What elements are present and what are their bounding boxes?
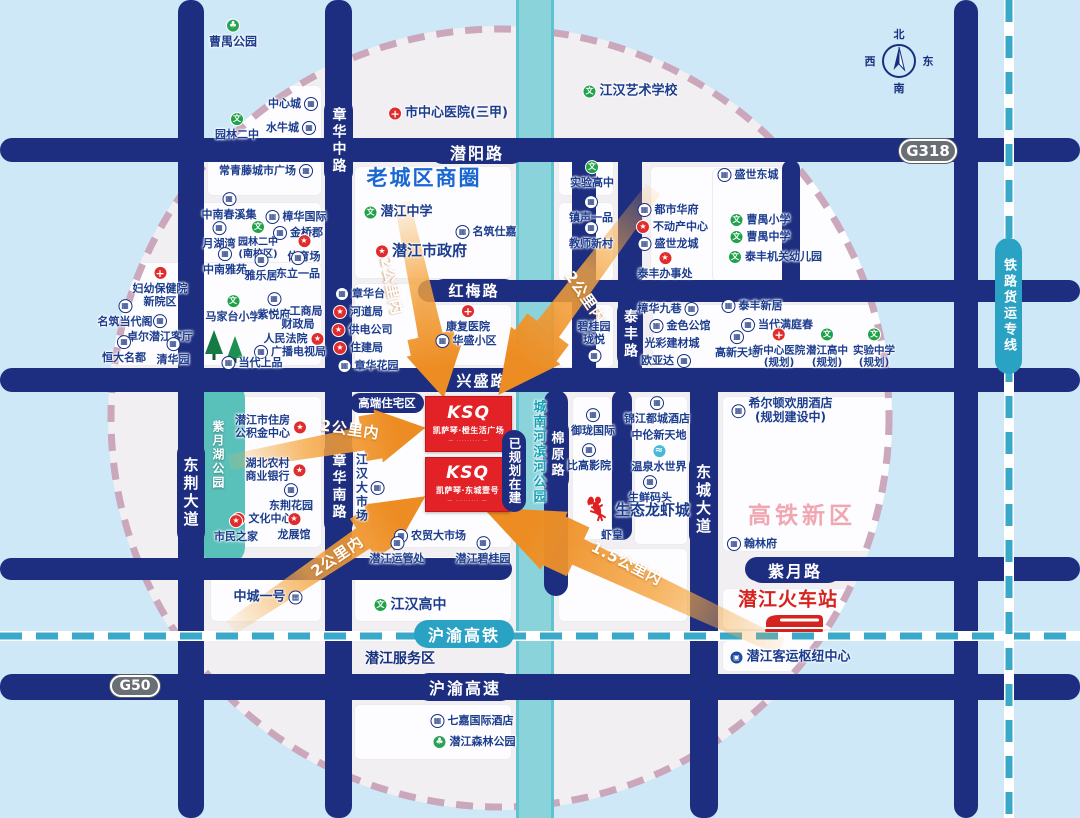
poi-text: 实验高中 [570,177,614,190]
poi-label: 紫月湖公园 [210,420,224,490]
poi-bld-site: ▦东荆花园 [269,483,313,513]
poi-school-site: 文江汉艺术学校 [582,85,677,100]
cart-icon: ▦ [677,354,691,368]
poi-text: 御珑国际 [571,425,615,438]
poi-bld-site: ▦章华台 [335,287,385,301]
bus-icon: ▣ [729,651,743,665]
poi-bld-site: ▦御珑国际 [571,408,615,438]
poi-star-site: ★人民法院 [264,332,325,346]
poi-text: 曹禺公园 [209,36,257,50]
poi-text: 河道局 [350,306,383,319]
lobster-icon [584,495,612,527]
school-icon: 文 [226,294,240,308]
project-tagline: — ········· — [447,498,487,504]
poi-text: 龙展馆 [278,529,311,542]
school-icon: 文 [363,206,377,220]
bld-icon: ▦ [338,359,352,373]
star-icon: ★ [375,244,389,258]
poi-text: 名筑仕嘉 [473,226,517,239]
poi-text: 生态龙虾城 [615,502,690,519]
city-block [354,704,512,760]
poi-bld-site: ▦盛世龙城 [638,237,699,251]
poi-text: 教师新村 [569,238,613,251]
bld-icon: ▦ [584,195,598,209]
poi-text: 盛世东城 [735,169,779,182]
poi-label: 虾皇 [601,530,623,543]
rail-label-freight: 铁路货运专线 [995,238,1022,374]
road-label-ziyue: 紫月路 [749,557,841,583]
poi-star-site: ★泰丰办事处 [638,251,693,281]
school-icon: 文 [730,230,744,244]
poi-bld-site: ▦雅乐居 [245,253,278,283]
poi-park-site: ♣曹禺公园 [209,19,257,50]
cross-icon: + [461,304,475,318]
star-icon: ★ [332,323,346,337]
poi-text: 紫月湖公园 [210,420,224,490]
poi-text: 碧桂园珑悦 [578,321,611,346]
poi-bld-site: ▦中心城 [268,97,318,111]
bld-icon: ▦ [222,192,236,206]
road-label-dongjing: 东荆大道 [177,440,205,546]
poi-bld-site: ▦中城一号 [233,591,302,606]
poi-star-site: ★住建局 [333,341,383,355]
bld-icon: ▦ [584,221,598,235]
poi-text: 市民之家 [214,531,258,544]
poi-cross-site: +新中心医院(规划) [753,327,806,368]
poi-bld-site: ▦潜江运管处 [370,536,425,566]
rail-station-label: 潜江火车站 [738,585,838,612]
poi-bld-site: ▦中南雅苑 [203,247,247,277]
poi-text: 财政局 [282,319,315,332]
poi-bld-site: ▦常青藤城市广场 [219,164,313,178]
highway-badge-g318: G318 [899,139,957,163]
poi-text: 锦江都城酒店 [624,413,690,426]
bld-icon: ▦ [730,330,744,344]
poi-water-site: ≈温泉水世界 [632,444,687,474]
bld-icon: ▦ [289,591,303,605]
poi-text: 樟华九巷 [638,303,682,316]
poi-star-site: ★湖北农村商业银行 [246,457,307,482]
bld-icon: ▦ [436,334,450,348]
poi-school-site: 文潜江高中(规划) [806,327,848,368]
park-icon: ♣ [433,735,447,749]
poi-bld-site: ▦泰丰新居 [722,299,783,313]
poi-text: 中伦新天地 [632,430,687,443]
school-icon: 文 [728,250,742,264]
water-icon: ≈ [652,444,666,458]
poi-school-site: 文曹禺中学 [730,230,791,244]
poi-text: 清华园 [157,354,190,367]
cross-icon: + [772,327,786,341]
poi-text: 樟华国际 [283,211,327,224]
bld-icon: ▦ [638,237,652,251]
poi-text: 翰林府 [744,538,777,551]
cross-icon: + [153,266,167,280]
poi-school-site: 文曹禺小学 [730,213,791,227]
poi-text: 住建局 [350,342,383,355]
poi-text: 东立一品 [276,268,320,281]
road-expressway [0,674,1080,700]
poi-text: 比高影院 [567,460,611,473]
poi-text: 温泉水世界 [632,461,687,474]
project-name: 凯萨琴·东城壹号 [436,485,499,496]
compass-north: 北 [894,26,905,42]
poi-bld-site: ▦名筑仕嘉 [456,225,517,239]
poi-text: 马家台小学 [206,311,261,324]
poi-bld-site: ▦比高影院 [567,443,611,473]
poi-text: 泰丰机关幼儿园 [745,251,822,264]
school-icon: 文 [820,327,834,341]
poi-text: 都市华府 [655,204,699,217]
poi-text: 欧亚达 [641,355,674,368]
bld-icon: ▦ [117,335,131,349]
poi-bld-site: ▦当代上品 [222,356,283,370]
poi-text: 潜江森林公园 [450,736,516,749]
poi-bld-site: ▦盛世东城 [718,168,779,182]
poi-text: 泰丰新居 [739,300,783,313]
bld-icon: ▦ [153,314,167,328]
bld-icon: ▦ [212,221,226,235]
road-east-ring [954,0,978,818]
bld-icon: ▦ [456,225,470,239]
poi-text: 中心城 [268,98,301,111]
poi-text: 当代上品 [239,357,283,370]
road-label-expressway: 沪渝高速 [415,673,515,701]
poi-bld-site: ▦江汉大市场 [354,453,385,523]
bld-icon: ▦ [476,536,490,550]
poi-text: 曹禺中学 [747,231,791,244]
poi-bld-site: ▦东立一品 [276,251,320,281]
project-logo: KSQ [446,465,489,482]
road-label-dongcheng: 东城大道 [689,451,718,549]
poi-text: 供电公司 [349,324,393,337]
poi-text: 常青藤城市广场 [219,165,296,178]
poi-text: 新中心医院(规划) [753,344,806,368]
poi-label: 光彩建材城 [645,338,700,351]
poi-text: 工商局 [290,306,323,319]
bld-icon: ▦ [587,349,601,363]
poi-text: 潜江市住房公积金中心 [235,414,290,439]
compass: 北 西 东 南 [864,26,934,96]
poi-star-site: ★供电公司 [332,323,393,337]
zone-hsr-district: 高铁新区 [748,496,856,530]
poi-text: 不动产中心 [653,221,708,234]
poi-text: 潜江市政府 [392,242,467,259]
poi-bld-site: ▦华盛小区 [436,334,497,348]
poi-star-site: ★潜江市住房公积金中心 [235,414,307,439]
poi-text: 康复医院 [446,321,490,334]
poi-text: 虾皇 [601,530,623,543]
poi-text: 恒大名都 [102,352,146,365]
poi-text: 盛世龙城 [655,238,699,251]
bld-icon: ▦ [650,396,664,410]
compass-west: 西 [865,53,876,69]
cross-icon: + [388,107,402,121]
bld-icon: ▦ [304,97,318,111]
poi-text: 潜江客运枢纽中心 [746,651,850,666]
poi-text: 希尔顿欢朋酒店(规划建设中) [748,397,832,425]
poi-bld-site: ▦教师新村 [569,221,613,251]
poi-school-site: 文园林二中 [215,112,259,142]
poi-label: 城南河滨河公园 [530,400,545,505]
school-icon: 文 [867,327,881,341]
poi-text: 金色公馆 [667,320,711,333]
poi-star-site: ★潜江市政府 [375,242,467,259]
poi-star-site: ★河道局 [333,305,383,319]
poi-text: 泰丰办事处 [638,268,693,281]
poi-bld-site: ▦七嘉国际酒店 [431,714,514,728]
poi-text: 城南河滨河公园 [530,400,545,505]
poi-text: 湖北农村商业银行 [246,457,290,482]
poi-lobster-site: 生态龙虾城 [584,495,690,527]
project-box-east-city-no1: KSQ 凯萨琴·东城壹号 — ········· — [425,457,510,512]
zone-pill-residential: 高端住宅区 [350,393,424,413]
star-icon: ★ [287,512,301,526]
compass-south: 南 [894,80,905,96]
poi-star-site: ★市民之家 [214,514,258,544]
poi-school-site: 文马家台小学 [206,294,261,324]
bld-icon: ▦ [722,299,736,313]
poi-text: 潜江中学 [380,206,432,221]
poi-text: 东荆花园 [269,500,313,513]
poi-label: 财政局 [282,319,315,332]
bld-icon: ▦ [299,164,313,178]
school-icon: 文 [730,213,744,227]
poi-bld-site: ▦章华花园 [338,359,399,373]
poi-text: 中南雅苑 [203,264,247,277]
bld-icon: ▦ [166,337,180,351]
star-icon: ★ [311,332,325,346]
bld-icon: ▦ [118,299,132,313]
train-icon [763,609,825,634]
poi-text: 江汉艺术学校 [599,85,677,100]
poi-text: 园林二中 [215,129,259,142]
poi-label: 工商局 [290,306,323,319]
poi-bld-site: ▦恒大名都 [102,335,146,365]
road-dongjing [178,0,204,818]
bld-icon: ▦ [284,483,298,497]
star-icon: ★ [293,463,307,477]
star-icon: ★ [297,234,311,248]
poi-text: 光彩建材城 [645,338,700,351]
poi-bld-site: ▦中南春溪集 [202,192,257,222]
bld-icon: ▦ [586,408,600,422]
bld-icon: ▦ [273,226,287,240]
poi-school-site: 文实验高中 [570,160,614,190]
poi-label: 中伦新天地 [632,430,687,443]
road-label-mianyuan: 棉原路 [543,418,569,492]
poi-star-site: ★龙展馆 [278,512,311,542]
road-west-south [0,558,512,580]
zone-old-town: 老城区商圈 [367,162,482,192]
poi-star-site: ★不动产中心 [636,220,708,234]
poi-bld-site: ▦锦江都城酒店 [624,396,690,426]
poi-school-site: 文江汉高中 [374,597,447,613]
poi-text: 华盛小区 [453,335,497,348]
poi-text: 雅乐居 [245,270,278,283]
poi-text: 章华台 [352,288,385,301]
bld-icon: ▦ [718,168,732,182]
project-name: 凯萨琴·橙生活广场 [433,425,505,436]
bld-icon: ▦ [643,475,657,489]
poi-bld-site: ▦希尔顿欢朋酒店(规划建设中) [731,397,832,425]
poi-cross-site: +市中心医院(三甲) [388,107,508,122]
poi-text: 水牛城 [266,122,299,135]
poi-bld-site: ▦樟华九巷 [638,302,699,316]
poi-bld-site: ▦水牛城 [266,121,316,135]
poi-school-site: 文实验中学(规划) [853,327,895,368]
compass-east: 东 [923,53,934,69]
poi-cross-site: +康复医院 [446,304,490,334]
star-icon: ★ [333,341,347,355]
school-icon: 文 [582,85,596,99]
bld-icon: ▦ [218,247,232,261]
poi-text: 潜江运管处 [370,553,425,566]
bld-icon: ▦ [222,356,236,370]
bld-icon: ▦ [291,251,305,265]
school-icon: 文 [251,220,265,234]
bld-icon: ▦ [390,536,404,550]
poi-bld-site: ▦金色公馆 [650,319,711,333]
star-icon: ★ [658,251,672,265]
poi-text: 七嘉国际酒店 [448,715,514,728]
bld-icon: ▦ [431,714,445,728]
star-icon: ★ [636,220,650,234]
poi-cart-site: ▦欧亚达 [641,354,691,368]
bld-icon: ▦ [582,443,596,457]
poi-text: 潜江碧桂园 [456,553,511,566]
poi-bld-site: ▦都市华府 [638,203,699,217]
poi-park-site: ♣潜江森林公园 [433,735,516,749]
poi-text: 江汉大市场 [354,453,368,523]
project-tagline: — ········· — [448,438,488,444]
poi-text: 曹禺小学 [747,214,791,227]
poi-text: 江汉高中 [391,597,447,613]
poi-bld-site: ▦翰林府 [727,537,777,551]
location-map: 潜阳路 红梅路 兴盛路 紫月路 章华中路 章华南路 东荆大道 泰丰路 棉原路 东… [0,0,1080,818]
bld-icon: ▦ [650,319,664,333]
poi-text: 章华花园 [355,360,399,373]
poi-bld-site: ▦潜江碧桂园 [456,536,511,566]
road-label-hongmei: 红梅路 [432,279,516,302]
bld-icon: ▦ [267,292,281,306]
star-icon: ★ [293,420,307,434]
school-icon: 文 [585,160,599,174]
bld-icon: ▦ [370,481,384,495]
poi-text: 人民法院 [264,333,308,346]
school-icon: 文 [374,598,388,612]
star-icon: ★ [229,514,243,528]
bld-icon: ▦ [254,253,268,267]
bld-icon: ▦ [638,203,652,217]
service-area-label: 潜江服务区 [365,648,435,668]
highway-badge-g50: G50 [110,675,160,697]
poi-text: 潜江高中(规划) [806,344,848,368]
poi-bld-site: ▦碧桂园珑悦 [578,321,611,363]
bld-icon: ▦ [731,404,745,418]
poi-school-site: 文泰丰机关幼儿园 [728,250,822,264]
road-label-qianyang: 潜阳路 [430,139,524,164]
road-label-zhanghua-mid: 章华中路 [324,96,353,186]
poi-bld-site: ▦清华园 [157,337,190,367]
park-icon: ♣ [226,19,240,33]
bld-icon: ▦ [685,302,699,316]
rail-label-hsr: 沪渝高铁 [414,620,514,648]
poi-text: 中城一号 [233,591,285,606]
zone-pill-planned: 已规划在建 [502,430,526,512]
project-logo: KSQ [447,405,490,422]
project-box-orange-life-plaza: KSQ 凯萨琴·橙生活广场 — ········· — [425,396,512,452]
poi-bus-site: ▣潜江客运枢纽中心 [729,651,850,666]
poi-school-site: 文潜江中学 [363,206,432,221]
star-icon: ★ [333,305,347,319]
bld-icon: ▦ [727,537,741,551]
road-dongcheng [690,368,718,818]
bld-icon: ▦ [335,287,349,301]
poi-text: 实验中学(规划) [853,344,895,368]
school-icon: 文 [230,112,244,126]
bld-icon: ▦ [302,121,316,135]
poi-text: 市中心医院(三甲) [405,107,508,122]
